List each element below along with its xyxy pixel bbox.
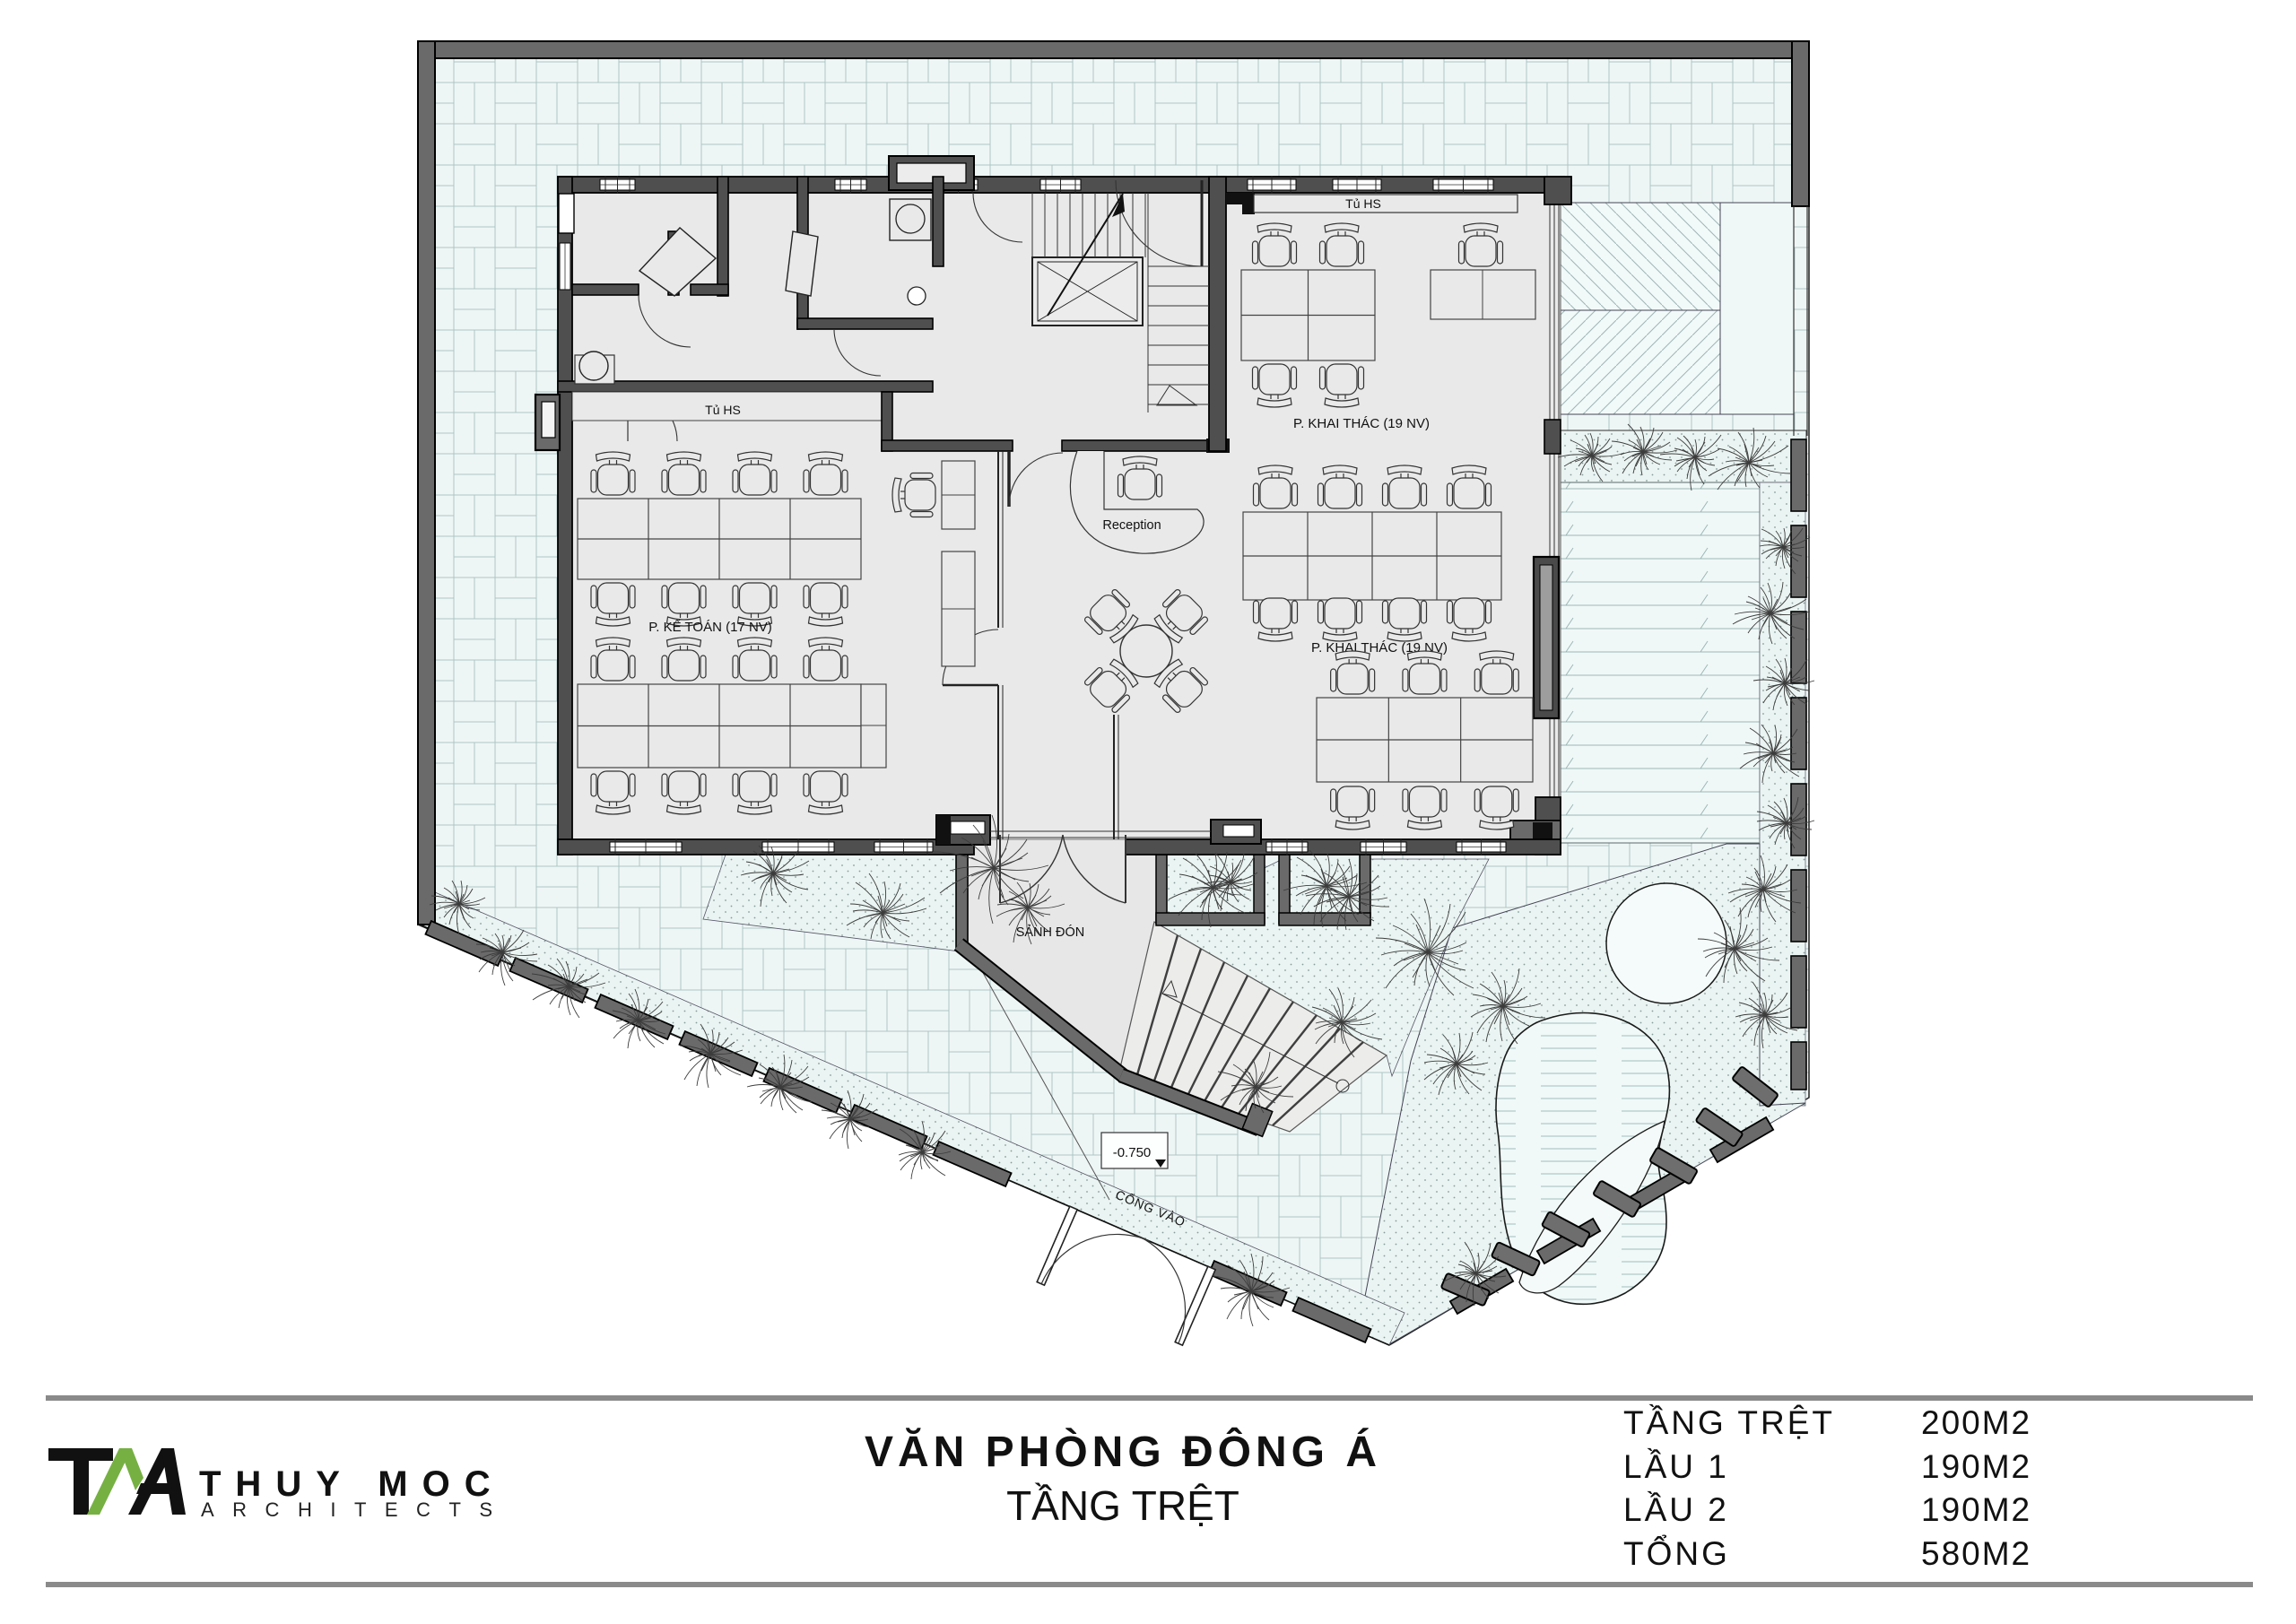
svg-text:TỔNG: TỔNG	[1623, 1533, 1730, 1572]
svg-text:190M2: 190M2	[1921, 1491, 2031, 1528]
svg-text:P. KẾ TOÁN (17 NV): P. KẾ TOÁN (17 NV)	[648, 620, 772, 635]
svg-text:190M2: 190M2	[1921, 1448, 2031, 1485]
svg-text:ARCHITECTS: ARCHITECTS	[201, 1498, 511, 1521]
svg-text:200M2: 200M2	[1921, 1404, 2031, 1441]
svg-text:VĂN PHÒNG ĐÔNG Á: VĂN PHÒNG ĐÔNG Á	[865, 1427, 1381, 1476]
svg-text:TẦNG TRỆT: TẦNG TRỆT	[1006, 1482, 1239, 1529]
svg-text:SẢNH ĐÓN: SẢNH ĐÓN	[1016, 925, 1085, 940]
svg-text:-0.750: -0.750	[1113, 1145, 1152, 1160]
svg-text:TẦNG TRỆT: TẦNG TRỆT	[1623, 1404, 1835, 1441]
svg-text:Tủ HS: Tủ HS	[1345, 196, 1381, 211]
svg-text:580M2: 580M2	[1921, 1535, 2031, 1572]
svg-text:Reception: Reception	[1102, 518, 1161, 533]
svg-text:LẦU 1: LẦU 1	[1623, 1448, 1729, 1485]
svg-text:LẦU 2: LẦU 2	[1623, 1491, 1729, 1528]
svg-text:Tủ HS: Tủ HS	[705, 403, 741, 417]
svg-text:P. KHAI THÁC (19 NV): P. KHAI THÁC (19 NV)	[1293, 416, 1430, 431]
